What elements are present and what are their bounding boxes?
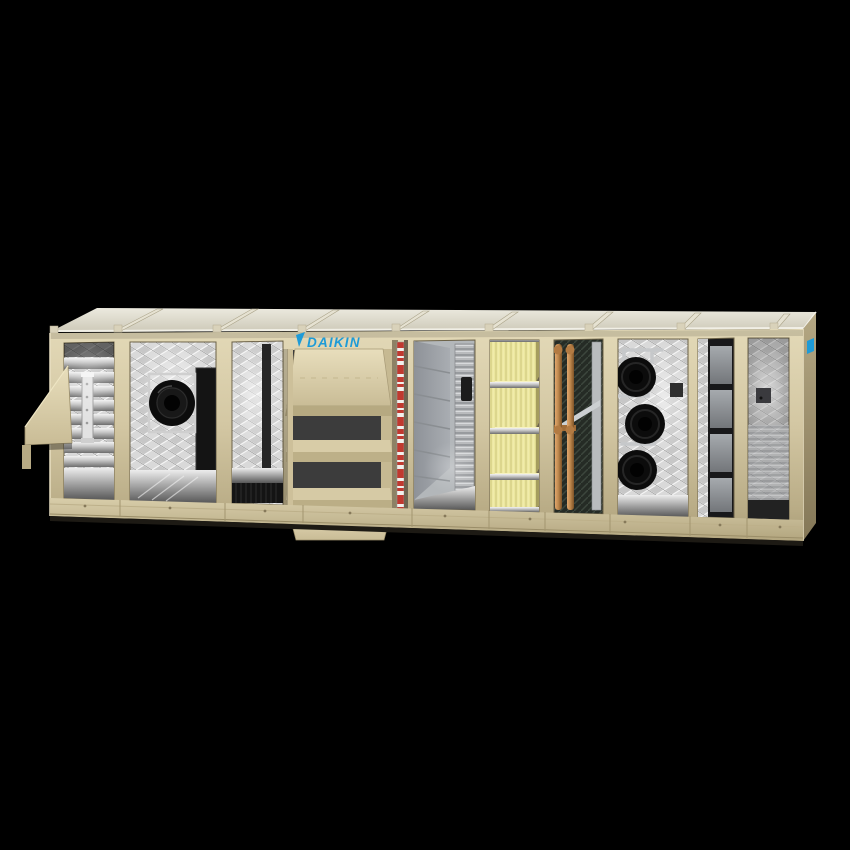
fan-array-section <box>616 339 694 517</box>
junction-box <box>756 388 771 403</box>
plenum-fan <box>616 357 656 397</box>
hood-top-lip <box>285 406 393 416</box>
plenum-fan <box>617 450 657 490</box>
coil-section <box>553 339 603 514</box>
right-end-panel <box>803 313 816 541</box>
access-section <box>414 340 480 510</box>
filter-bank-section <box>489 335 541 512</box>
filter-cartridges <box>490 335 541 511</box>
warning-label-strip <box>392 340 408 516</box>
supply-fan-section <box>130 333 216 503</box>
junction-box <box>670 383 683 397</box>
daikin-logo-text: DAIKIN <box>307 335 361 350</box>
door-latch <box>461 377 472 401</box>
panel-rack-section <box>698 338 734 518</box>
plenum-fan <box>149 380 195 426</box>
floor-grate <box>232 483 283 503</box>
product-photo-canvas: DAIKIN <box>0 0 850 850</box>
hood-shelf-1 <box>286 440 392 452</box>
hood-shelf-2 <box>286 488 392 500</box>
insulated-plenum-section <box>227 337 287 505</box>
plenum-fan <box>625 404 665 444</box>
end-section <box>742 338 794 520</box>
roof <box>50 308 816 333</box>
ahu-unit-rendering: DAIKIN <box>0 0 850 850</box>
